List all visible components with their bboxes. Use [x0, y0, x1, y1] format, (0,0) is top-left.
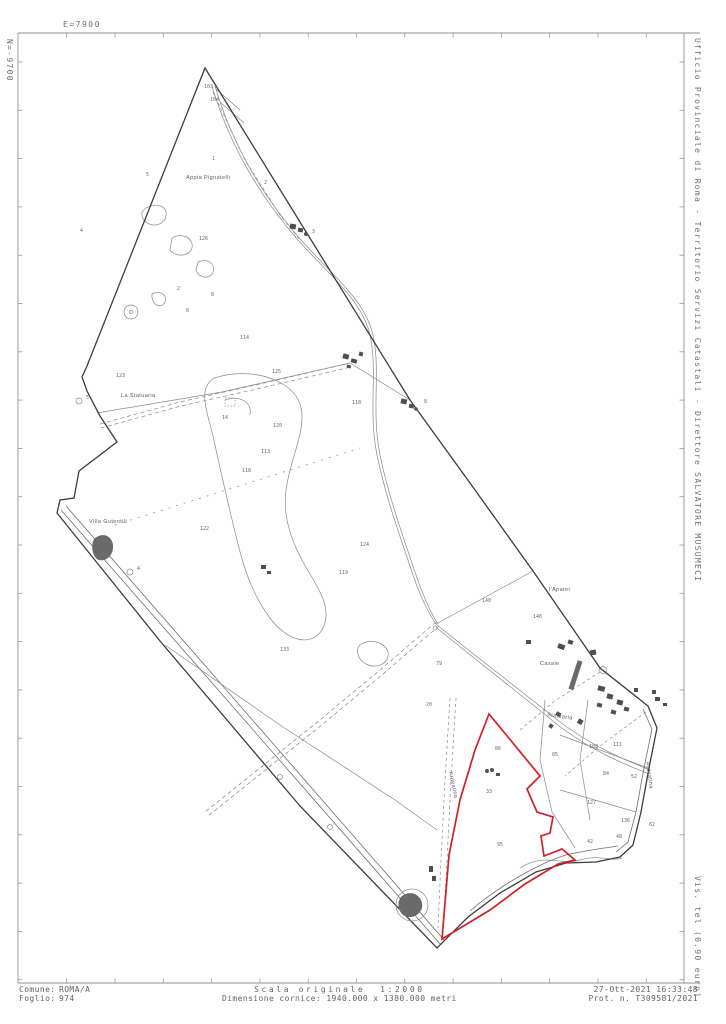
- parcel-number-label: 8: [424, 399, 427, 405]
- toponym-label: l'Apater: [549, 587, 571, 593]
- parcel-number-label: 136: [621, 818, 630, 824]
- protocol-number: Prot. n. T309581/2021: [588, 994, 698, 1003]
- stream-lines: [212, 86, 650, 868]
- parcel-number-label: 5: [146, 172, 149, 178]
- parcel-number-label: 2: [177, 286, 180, 292]
- parcel-number-label: 52: [631, 774, 637, 780]
- parcel-number-label: 118: [352, 400, 361, 406]
- highlighted-parcel-outline: [442, 714, 575, 939]
- toponym-label: Appia Pignatelli: [186, 175, 230, 181]
- parcel-number-label: 2: [264, 180, 267, 186]
- parcel-number-label: 86: [495, 746, 501, 752]
- parcel-number-label: 133: [280, 647, 289, 653]
- parcel-number-label: 5: [86, 395, 89, 401]
- scala-originale: Scala originale 1:2000: [90, 985, 588, 994]
- parcel-number-label: 8: [211, 292, 214, 298]
- parcel-number-label: 4: [80, 228, 83, 234]
- footer-bar: Comune:ROMA/A Foglio:974 Scala originale…: [19, 985, 698, 1003]
- parcel-number-label: 127: [587, 800, 596, 806]
- foglio-boundary: [57, 68, 657, 948]
- parcel-number-label: 4: [137, 566, 140, 572]
- parcel-number-label: 103: [204, 84, 213, 90]
- parcel-number-label: 33: [486, 789, 492, 795]
- building-footprints: [92, 224, 667, 918]
- parcel-number-label: 3: [312, 229, 315, 235]
- footer-center-block: Scala originale 1:2000 Dimensione cornic…: [90, 985, 588, 1003]
- parcel-number-label: 119: [339, 570, 348, 576]
- parcel-number-label: 48: [616, 834, 622, 840]
- footer-right-block: 27-Ott-2021 16:33:48 Prot. n. T309581/20…: [588, 985, 698, 1003]
- comune-label: Comune:: [19, 985, 59, 994]
- foglio-label: Foglio:: [19, 994, 59, 1003]
- parcel-lines: [76, 89, 648, 848]
- parcel-number-label: 120: [273, 423, 282, 429]
- road-lines: [61, 506, 652, 945]
- parcel-number-label: 84: [603, 771, 609, 777]
- parcel-number-label: 126: [199, 236, 208, 242]
- toponym-label: Statuaria: [547, 712, 574, 722]
- parcel-number-label: 1: [212, 156, 215, 162]
- parcel-number-label: 79: [436, 661, 442, 667]
- cadastral-map-canvas: 1031041254126286312311411812514120113118…: [0, 0, 726, 1024]
- toponym-label: Ardeatina: [447, 771, 459, 799]
- toponym-label: Casale: [540, 661, 560, 667]
- parcel-number-label: 125: [272, 369, 281, 375]
- parcel-number-label: 122: [200, 526, 209, 532]
- toponym-label: Villa Gutentili: [89, 519, 127, 525]
- dimensione-cornice: Dimensione cornice: 1940.000 x 1380.000 …: [90, 994, 588, 1003]
- parcel-number-label: 62: [649, 822, 655, 828]
- parcel-number-label: 113: [261, 449, 270, 455]
- parcel-number-label: 42: [587, 839, 593, 845]
- parcel-number-label: 123: [116, 373, 125, 379]
- dashed-tracks: [100, 92, 646, 930]
- parcel-number-label: 85: [552, 752, 558, 758]
- cadastral-sheet: E=7900 N=-9700 Ufficio Provinciale di Ro…: [0, 0, 726, 1024]
- parcel-number-label: 114: [240, 335, 249, 341]
- parcel-number-label: 14: [222, 415, 228, 421]
- parcel-number-label: 140: [482, 598, 491, 604]
- parcel-number-label: 146: [533, 614, 542, 620]
- footer-left-block: Comune:ROMA/A Foglio:974: [19, 985, 90, 1003]
- comune-value: ROMA/A: [59, 985, 90, 994]
- foglio-value: 974: [59, 994, 75, 1003]
- timestamp: 27-Ott-2021 16:33:48: [588, 985, 698, 994]
- grid-tick-marks: [18, 33, 684, 983]
- toponym-label: La Statuaria: [121, 393, 156, 399]
- sheet-frame: [18, 33, 700, 983]
- parcel-number-label: 124: [360, 542, 369, 548]
- parcel-number-label: 95: [497, 842, 503, 848]
- parcel-number-label: 104: [210, 97, 219, 103]
- parcel-number-label: 118: [242, 468, 251, 474]
- parcel-number-label: 6: [186, 308, 189, 314]
- parcel-number-label: 109: [589, 744, 598, 750]
- parcel-number-label: 111: [613, 742, 622, 748]
- parcel-number-label: 20: [426, 702, 432, 708]
